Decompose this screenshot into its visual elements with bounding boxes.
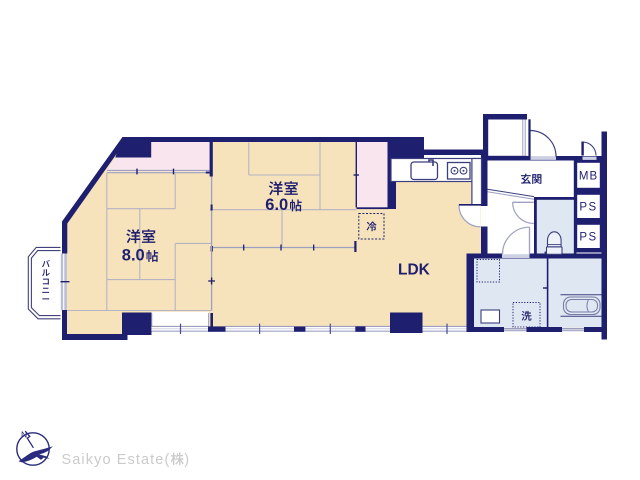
svg-text:MB: MB	[579, 171, 598, 183]
svg-text:PS: PS	[579, 232, 597, 244]
svg-text:LDK: LDK	[398, 261, 431, 278]
svg-text:8.0: 8.0	[122, 247, 145, 265]
svg-text:Saikyo Estate(: Saikyo Estate(	[62, 452, 171, 468]
svg-text:): )	[184, 452, 189, 468]
svg-text:PS: PS	[579, 202, 597, 214]
svg-text:6.0: 6.0	[265, 196, 288, 214]
svg-text:N: N	[21, 429, 27, 439]
